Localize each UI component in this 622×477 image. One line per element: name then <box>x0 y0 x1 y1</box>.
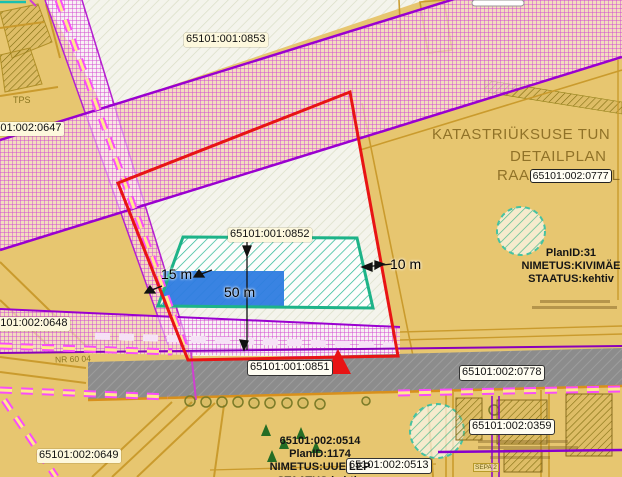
detail-plan-title-line3: RAA 65101:002:0777 L <box>497 167 621 184</box>
measurement-15m: 15 m <box>161 266 192 282</box>
parcel-label-65101-002-0359[interactable]: 65101:002:0359 <box>469 419 555 435</box>
plan-name-bottom: NIMETUS:UUE LEP <box>252 461 388 474</box>
plan-name-right: NIMETUS:KIVIMÄE <box>516 260 622 273</box>
title-line3-prefix: RAA <box>497 167 530 184</box>
map-viewport: 65101:001:0853 65101:002:0647 65101:001:… <box>0 0 622 477</box>
parcel-label-65101-002-0778[interactable]: 65101:002:0778 <box>459 365 545 381</box>
parcel-label-65101-002-0647[interactable]: 65101:002:0647 <box>0 122 64 136</box>
parcel-label-65101-001-0852[interactable]: 65101:001:0852 <box>228 228 312 242</box>
parcel-label-65101-002-0514[interactable]: 65101:002:0514 <box>252 435 388 448</box>
measurement-50m: 50 m <box>224 284 255 300</box>
plan-info-block-right: PlanID:31 NIMETUS:KIVIMÄE STAATUS:kehtiv <box>516 247 622 287</box>
measurement-10m: 10 m <box>390 256 421 272</box>
clipped-label-fragment <box>472 0 524 6</box>
parcel-label-65101-002-0649[interactable]: 65101:002:0649 <box>37 449 121 463</box>
plan-status-right: STAATUS:kehtiv <box>516 273 622 286</box>
sepa-label: SEPA 2 <box>473 463 499 472</box>
plan-id-right: PlanID:31 <box>516 247 622 260</box>
parcel-label-65101-001-0851[interactable]: 65101:001:0851 <box>247 360 333 376</box>
title-line3-suffix: L <box>612 167 621 184</box>
detail-plan-title-line1: KATASTRIÜKSUSE TUN <box>432 126 610 143</box>
tps-label: TPS <box>13 95 31 105</box>
parcel-label-65101-002-0777[interactable]: 65101:002:0777 <box>530 169 612 183</box>
detail-plan-title-line2: DETAILPLAN <box>510 148 607 165</box>
road-number-label: NR 60 04 <box>55 353 91 364</box>
plan-id-bottom: PlanID:1174 <box>252 448 388 461</box>
parcel-label-65101-001-0853[interactable]: 65101:001:0853 <box>184 33 268 47</box>
parcel-label-65101-002-0648[interactable]: 65101:002:0648 <box>0 317 70 331</box>
plan-info-block-bottom: 65101:002:0514 PlanID:1174 NIMETUS:UUE L… <box>252 435 388 477</box>
